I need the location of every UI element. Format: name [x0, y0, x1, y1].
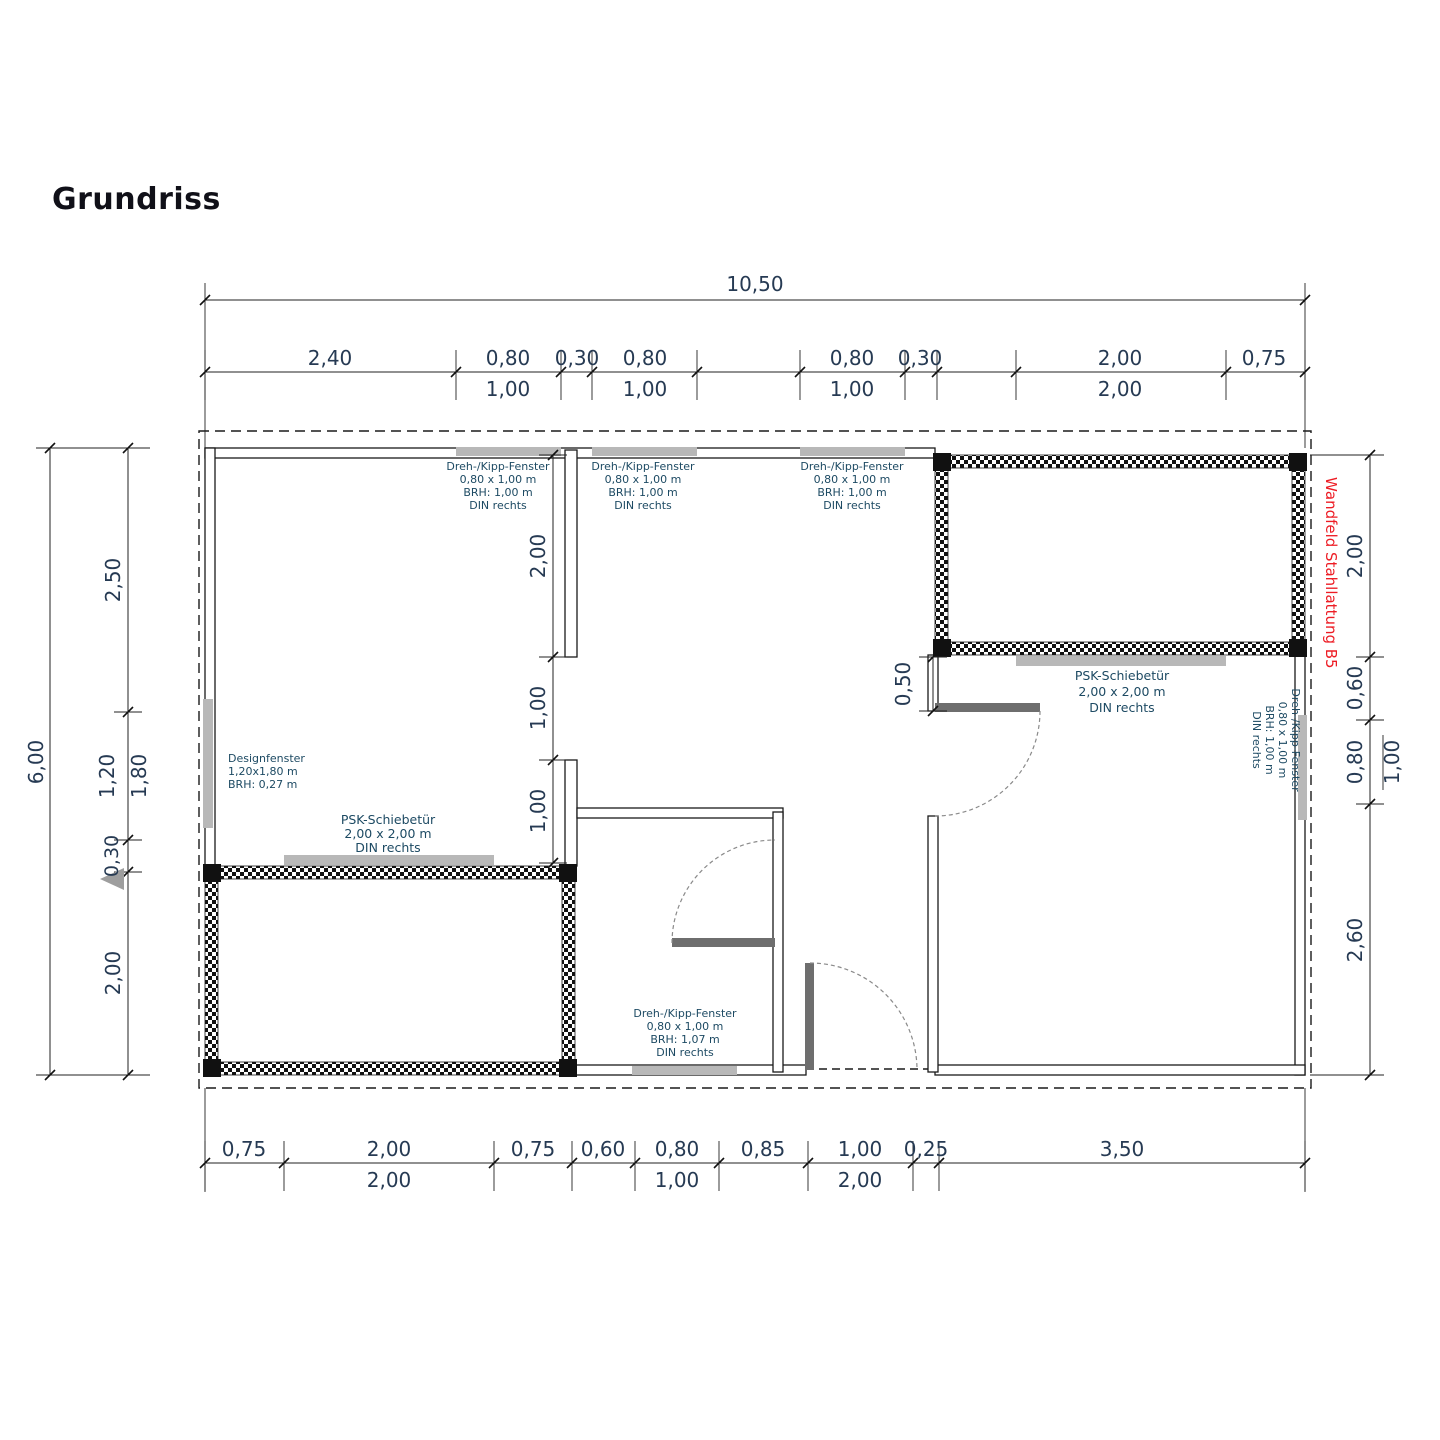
dimension-label: 1,00 [830, 377, 875, 401]
dimension-label: 1,00 [1380, 740, 1404, 785]
svg-text:DIN rechts: DIN rechts [1089, 700, 1154, 715]
svg-text:Dreh-/Kipp-Fenster: Dreh-/Kipp-Fenster [446, 460, 550, 473]
svg-text:DIN rechts: DIN rechts [614, 499, 672, 512]
svg-text:DIN rechts: DIN rechts [1250, 711, 1263, 769]
window-label-top-1: Dreh-/Kipp-Fenster 0,80 x 1,00 m BRH: 1,… [446, 460, 550, 512]
dimension-label: 0,30 [555, 346, 600, 370]
dimension-label: 0,30 [101, 835, 123, 877]
door-arc-entrance [810, 963, 917, 1070]
svg-text:0,80 x 1,00 m: 0,80 x 1,00 m [1276, 702, 1289, 779]
dimension-label: 1,00 [526, 686, 550, 731]
door-leaf-right-room [935, 703, 1040, 712]
dimension-label: 10,50 [726, 272, 783, 296]
floor-plan-page: Grundriss [0, 0, 1440, 1440]
svg-text:DIN rechts: DIN rechts [823, 499, 881, 512]
dimension-label: 0,75 [511, 1137, 556, 1161]
svg-text:BRH: 1,00 m: BRH: 1,00 m [463, 486, 532, 499]
dimension-label: 3,50 [1100, 1137, 1145, 1161]
psk-door-label-left: PSK-Schiebetür 2,00 x 2,00 m DIN rechts [341, 812, 436, 855]
dimension-label: 1,00 [838, 1137, 883, 1161]
dimension-texts: 10,50 2,40 0,80 0,30 0,80 0,80 0,30 2,00… [24, 272, 1404, 1192]
door-arc-middle [672, 840, 775, 943]
svg-text:PSK-Schiebetür: PSK-Schiebetür [341, 812, 436, 827]
hatched-walls-top-right-room [933, 453, 1307, 657]
window-strip-top-2 [592, 447, 697, 456]
dimension-label: 2,00 [838, 1168, 883, 1192]
dimension-label: 2,00 [101, 951, 125, 996]
svg-text:Dreh-/Kipp-Fenster: Dreh-/Kipp-Fenster [633, 1007, 737, 1020]
door-leaf-entrance [805, 963, 814, 1070]
annotation-labels: Dreh-/Kipp-Fenster 0,80 x 1,00 m BRH: 1,… [228, 460, 1340, 1059]
window-label-top-2: Dreh-/Kipp-Fenster 0,80 x 1,00 m BRH: 1,… [591, 460, 695, 512]
dimension-label: 0,80 [1343, 740, 1367, 785]
dimension-label: 1,00 [655, 1168, 700, 1192]
window-strip-bottom [632, 1066, 737, 1075]
svg-text:BRH: 1,00 m: BRH: 1,00 m [608, 486, 677, 499]
dimension-label: 1,00 [486, 377, 531, 401]
svg-text:DIN rechts: DIN rechts [355, 840, 420, 855]
svg-text:0,80 x 1,00 m: 0,80 x 1,00 m [605, 473, 682, 486]
dimension-label: 0,80 [655, 1137, 700, 1161]
dimension-label: 2,00 [367, 1137, 412, 1161]
svg-text:DIN rechts: DIN rechts [469, 499, 527, 512]
svg-text:0,80 x 1,00 m: 0,80 x 1,00 m [814, 473, 891, 486]
dimension-label: 0,80 [486, 346, 531, 370]
dimension-label: 2,00 [1098, 377, 1143, 401]
window-strips [203, 447, 1307, 1075]
dimension-label: 1,20 [95, 754, 119, 799]
svg-text:1,20x1,80 m: 1,20x1,80 m [228, 765, 298, 778]
dimension-label: 0,25 [904, 1137, 949, 1161]
window-label-bottom: Dreh-/Kipp-Fenster 0,80 x 1,00 m BRH: 1,… [633, 1007, 737, 1059]
dimension-label: 0,50 [891, 662, 915, 707]
svg-text:Dreh-/Kipp-Fenster: Dreh-/Kipp-Fenster [591, 460, 695, 473]
exterior-walls [205, 448, 1305, 1075]
psk-door-strip-right [1016, 656, 1226, 666]
svg-text:Dreh-/Kipp-Fenster: Dreh-/Kipp-Fenster [800, 460, 904, 473]
dimension-ticks [45, 295, 1384, 1191]
dimension-label: 1,00 [526, 789, 550, 834]
dimension-label: 2,00 [1343, 534, 1367, 579]
svg-text:BRH: 0,27 m: BRH: 0,27 m [228, 778, 297, 791]
dimension-label: 6,00 [24, 740, 48, 785]
svg-text:2,00 x 2,00 m: 2,00 x 2,00 m [1078, 684, 1165, 699]
hatched-walls-bottom-left-room [203, 864, 577, 1077]
dimension-label: 0,60 [1343, 666, 1367, 711]
dimension-label: 0,60 [581, 1137, 626, 1161]
dimension-label: 2,50 [101, 558, 125, 603]
dimension-label: 2,00 [367, 1168, 412, 1192]
dimension-label: 2,00 [1098, 346, 1143, 370]
svg-text:BRH: 1,00 m: BRH: 1,00 m [817, 486, 886, 499]
dimension-label: 0,80 [623, 346, 668, 370]
red-note-wandfeld: Wandfeld Stahllattung B5 [1322, 477, 1340, 669]
design-window-label: Designfenster 1,20x1,80 m BRH: 0,27 m [228, 752, 305, 791]
svg-text:BRH: 1,07 m: BRH: 1,07 m [650, 1033, 719, 1046]
svg-text:Designfenster: Designfenster [228, 752, 305, 765]
svg-text:PSK-Schiebetür: PSK-Schiebetür [1075, 668, 1170, 683]
interior-walls [565, 450, 938, 1072]
dimension-label: 0,75 [1242, 346, 1287, 370]
dimension-label: 2,60 [1343, 918, 1367, 963]
dimension-label: 1,80 [127, 754, 151, 799]
svg-text:0,80 x 1,00 m: 0,80 x 1,00 m [647, 1020, 724, 1033]
svg-text:0,80 x 1,00 m: 0,80 x 1,00 m [460, 473, 537, 486]
dimension-label: 0,30 [898, 346, 943, 370]
door-leaf-middle [672, 938, 775, 947]
building-envelope-outline [199, 431, 1311, 1088]
dimension-label: 0,80 [830, 346, 875, 370]
design-window-strip [203, 699, 213, 828]
svg-text:Dreh-/Kipp-Fenster: Dreh-/Kipp-Fenster [1289, 688, 1302, 792]
floor-plan-drawing: 10,50 2,40 0,80 0,30 0,80 0,80 0,30 2,00… [0, 0, 1440, 1440]
svg-text:BRH: 1,00 m: BRH: 1,00 m [1263, 705, 1276, 774]
door-arc-right-room [935, 711, 1040, 816]
window-label-top-3: Dreh-/Kipp-Fenster 0,80 x 1,00 m BRH: 1,… [800, 460, 904, 512]
window-label-right: Dreh-/Kipp-Fenster 0,80 x 1,00 m BRH: 1,… [1250, 688, 1302, 792]
dimension-label: 2,40 [308, 346, 353, 370]
dimension-label: 0,85 [741, 1137, 786, 1161]
window-strip-top-3 [800, 447, 905, 456]
svg-text:2,00 x 2,00 m: 2,00 x 2,00 m [344, 826, 431, 841]
dimension-label: 1,00 [623, 377, 668, 401]
psk-door-label-right: PSK-Schiebetür 2,00 x 2,00 m DIN rechts [1075, 668, 1170, 715]
dimension-label: 0,75 [222, 1137, 267, 1161]
dimension-label: 2,00 [526, 534, 550, 579]
svg-text:DIN rechts: DIN rechts [656, 1046, 714, 1059]
psk-door-strip-left [284, 855, 494, 865]
